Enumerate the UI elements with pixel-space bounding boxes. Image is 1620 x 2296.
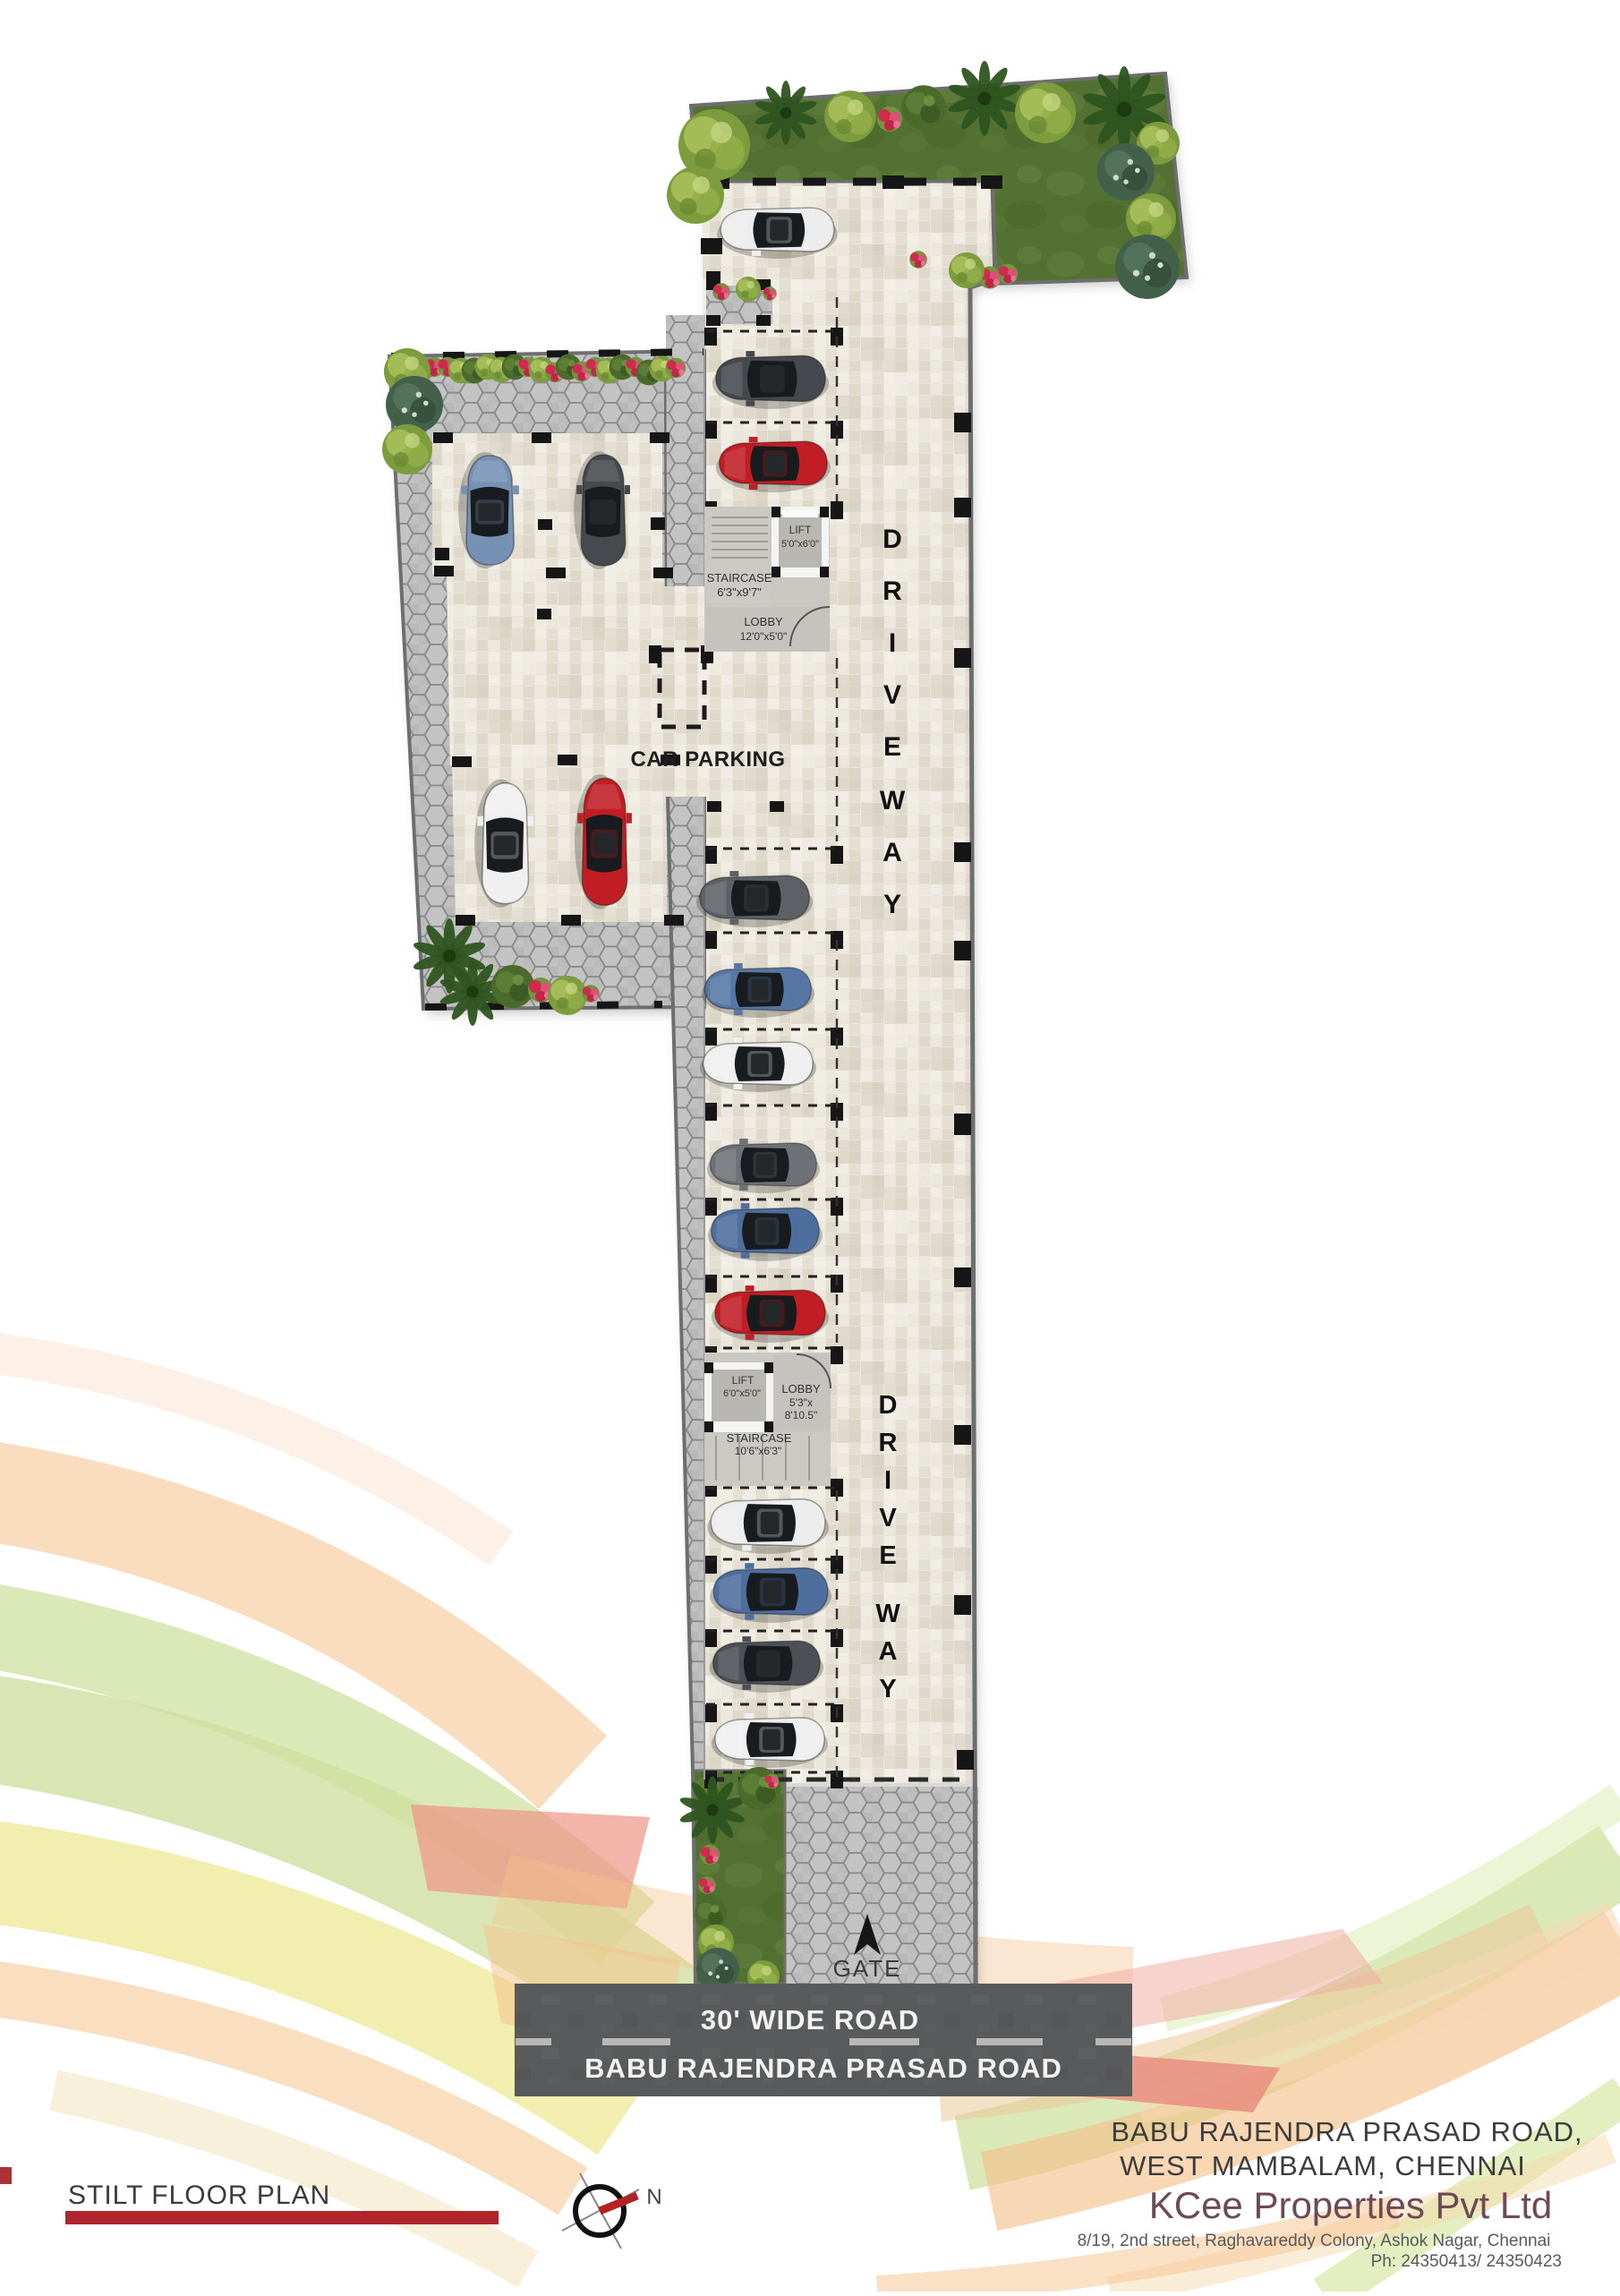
svg-text:STAIRCASE: STAIRCASE <box>727 1431 792 1445</box>
svg-text:I: I <box>884 1466 891 1495</box>
svg-text:W: W <box>875 1600 900 1628</box>
svg-text:LOBBY: LOBBY <box>744 615 783 628</box>
svg-text:30' WIDE ROAD: 30' WIDE ROAD <box>701 2004 919 2036</box>
svg-text:5'0"x6'0": 5'0"x6'0" <box>781 539 819 550</box>
svg-text:KCee Properties Pvt Ltd: KCee Properties Pvt Ltd <box>1149 2184 1553 2226</box>
svg-text:10'6"x6'3": 10'6"x6'3" <box>735 1445 781 1457</box>
svg-text:GATE: GATE <box>833 1955 902 1982</box>
svg-text:8'10.5": 8'10.5" <box>785 1409 818 1421</box>
svg-text:Ph: 24350413/ 24350423: Ph: 24350413/ 24350423 <box>1371 2252 1562 2271</box>
svg-text:LIFT: LIFT <box>732 1374 755 1387</box>
svg-text:6'3"x9'7": 6'3"x9'7" <box>717 585 762 599</box>
svg-text:I: I <box>889 628 896 658</box>
svg-text:6'0"x5'0": 6'0"x5'0" <box>723 1388 761 1399</box>
svg-text:W: W <box>880 786 906 815</box>
svg-text:E: E <box>883 732 901 762</box>
svg-text:V: V <box>879 1504 897 1532</box>
svg-text:BABU RAJENDRA PRASAD ROAD,: BABU RAJENDRA PRASAD ROAD, <box>1111 2116 1582 2147</box>
svg-text:BABU RAJENDRA PRASAD ROAD: BABU RAJENDRA PRASAD ROAD <box>584 2053 1062 2084</box>
svg-text:Y: Y <box>883 890 901 919</box>
svg-text:12'0"x5'0": 12'0"x5'0" <box>740 630 787 643</box>
svg-text:D: D <box>882 525 902 554</box>
svg-text:N: N <box>646 2185 661 2209</box>
svg-text:A: A <box>879 1637 898 1666</box>
svg-text:WEST MAMBALAM, CHENNAI: WEST MAMBALAM, CHENNAI <box>1120 2150 1526 2181</box>
svg-text:STILT FLOOR PLAN: STILT FLOOR PLAN <box>68 2181 330 2210</box>
svg-text:Y: Y <box>879 1675 896 1703</box>
svg-text:E: E <box>879 1541 896 1570</box>
svg-text:LOBBY: LOBBY <box>781 1382 821 1396</box>
svg-text:5'3"x: 5'3"x <box>789 1396 813 1409</box>
svg-text:LIFT: LIFT <box>789 524 812 536</box>
svg-text:V: V <box>883 680 901 710</box>
svg-text:A: A <box>882 838 902 867</box>
svg-text:STAIRCASE: STAIRCASE <box>707 571 772 585</box>
svg-text:R: R <box>882 576 902 606</box>
svg-text:8/19, 2nd street, Raghavareddy: 8/19, 2nd street, Raghavareddy Colony, A… <box>1078 2232 1551 2250</box>
svg-text:D: D <box>879 1391 898 1420</box>
svg-text:R: R <box>879 1429 898 1457</box>
svg-text:CAR PARKING: CAR PARKING <box>630 747 785 772</box>
